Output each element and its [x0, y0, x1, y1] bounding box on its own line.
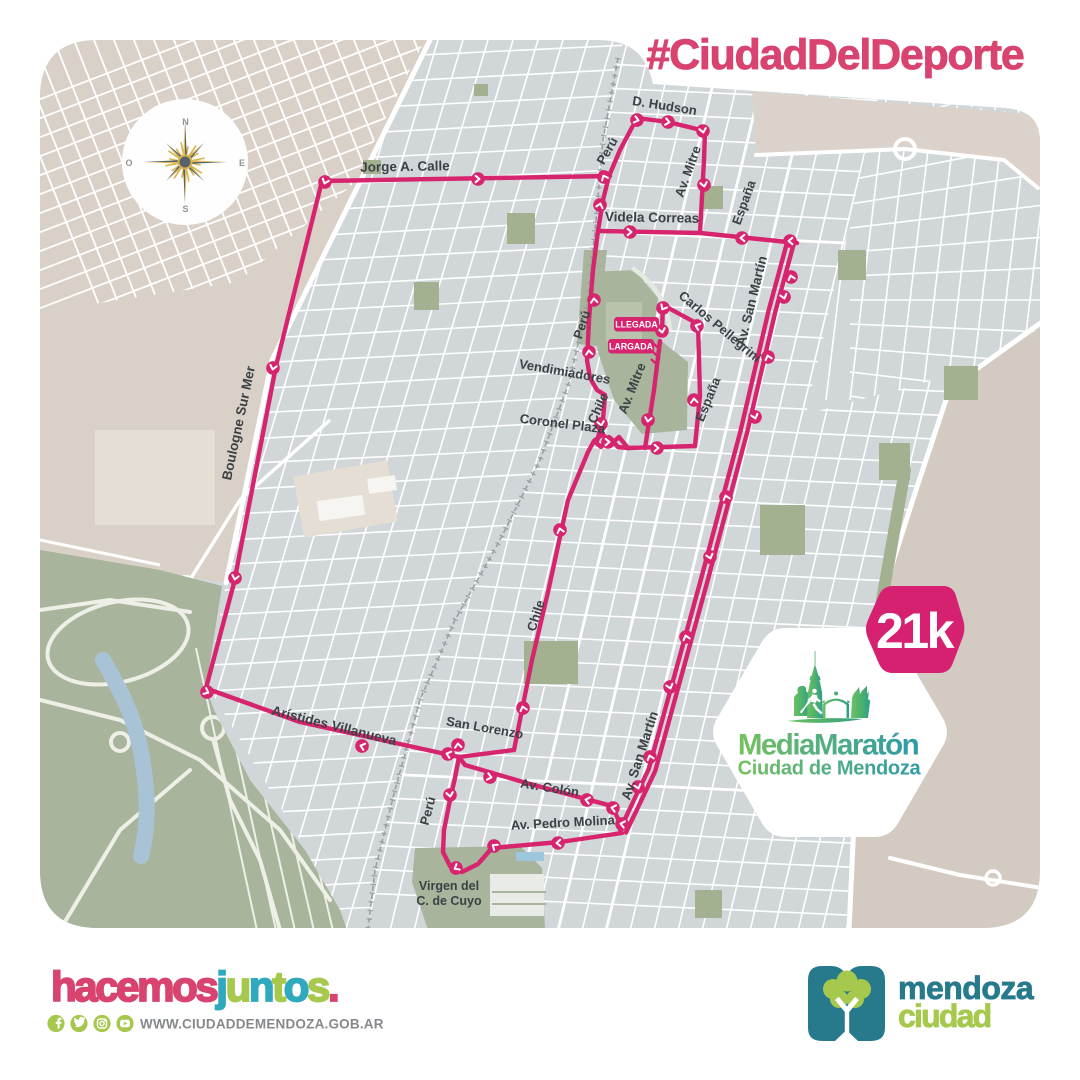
svg-text:Ciudad de Mendoza: Ciudad de Mendoza — [738, 758, 922, 780]
svg-text:#CiudadDelDeporte: #CiudadDelDeporte — [647, 31, 1024, 79]
svg-text:LLEGADA: LLEGADA — [615, 320, 658, 330]
svg-text:N: N — [182, 117, 189, 127]
svg-text:WWW.CIUDADDEMENDOZA.GOB.AR: WWW.CIUDADDEMENDOZA.GOB.AR — [140, 1017, 384, 1032]
svg-text:C. de Cuyo: C. de Cuyo — [416, 894, 482, 908]
svg-text:O: O — [125, 158, 132, 168]
svg-text:LARGADA: LARGADA — [609, 342, 654, 352]
svg-text:21k: 21k — [876, 603, 955, 659]
svg-text:Jorge A. Calle: Jorge A. Calle — [360, 158, 450, 175]
svg-text:E: E — [239, 158, 245, 168]
svg-text:S: S — [182, 204, 188, 214]
svg-text:ciudad: ciudad — [898, 998, 991, 1034]
svg-text:MediaMaratón: MediaMaratón — [738, 729, 919, 762]
svg-text:Videla Correas: Videla Correas — [605, 209, 700, 226]
svg-text:hacemosjuntos.: hacemosjuntos. — [51, 963, 337, 1010]
svg-text:Virgen del: Virgen del — [419, 879, 479, 893]
